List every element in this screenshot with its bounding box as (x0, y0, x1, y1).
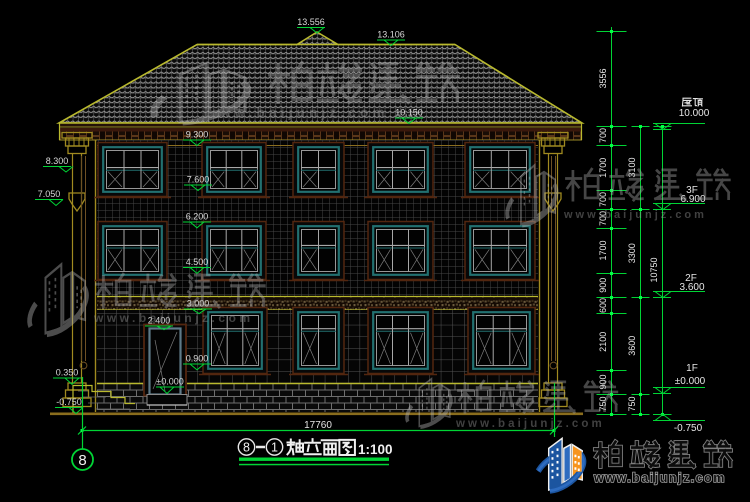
svg-text:13.106: 13.106 (377, 30, 405, 40)
svg-text:3600: 3600 (627, 336, 637, 356)
svg-text:4.500: 4.500 (186, 257, 209, 267)
svg-text:www.baijunjz.com: www.baijunjz.com (204, 105, 389, 120)
svg-text:8: 8 (243, 441, 250, 455)
svg-text:3556: 3556 (598, 68, 608, 88)
svg-text:9.300: 9.300 (186, 130, 209, 140)
svg-text:1700: 1700 (598, 158, 608, 178)
svg-text:3.600: 3.600 (679, 282, 704, 293)
svg-text:www.baijunjz.com: www.baijunjz.com (563, 209, 707, 221)
svg-text:www.baijunjz.com: www.baijunjz.com (455, 418, 605, 430)
svg-text:17760: 17760 (304, 420, 332, 431)
svg-text:10750: 10750 (649, 257, 659, 282)
svg-text:900: 900 (598, 278, 608, 293)
svg-text:-0.750: -0.750 (56, 397, 82, 407)
svg-text:8: 8 (78, 452, 86, 469)
svg-text:±0.000: ±0.000 (675, 376, 706, 387)
svg-text:2100: 2100 (598, 332, 608, 352)
svg-text:7.050: 7.050 (38, 189, 61, 199)
svg-text:8.300: 8.300 (46, 156, 69, 166)
svg-text:±0.000: ±0.000 (156, 377, 183, 387)
svg-text:10.150: 10.150 (395, 108, 423, 118)
svg-text:600: 600 (598, 298, 608, 313)
svg-text:10.000: 10.000 (679, 108, 710, 119)
svg-text:0.350: 0.350 (56, 368, 79, 378)
svg-text:-0.750: -0.750 (674, 423, 703, 434)
svg-text:3300: 3300 (627, 243, 637, 263)
svg-text:13.556: 13.556 (297, 17, 325, 27)
svg-text:1: 1 (271, 441, 278, 455)
svg-text:1:100: 1:100 (358, 442, 393, 457)
svg-text:6.200: 6.200 (186, 212, 209, 222)
svg-text:www.baijunjz.com: www.baijunjz.com (593, 471, 726, 485)
svg-text:700: 700 (598, 128, 608, 143)
svg-text:1700: 1700 (598, 240, 608, 260)
svg-text:0.900: 0.900 (186, 354, 209, 364)
svg-text:7.600: 7.600 (187, 175, 210, 185)
svg-text:www.baijunjz.com: www.baijunjz.com (93, 311, 254, 325)
svg-text:750: 750 (627, 396, 637, 411)
svg-text:700: 700 (598, 192, 608, 207)
svg-text:1F: 1F (686, 363, 698, 374)
